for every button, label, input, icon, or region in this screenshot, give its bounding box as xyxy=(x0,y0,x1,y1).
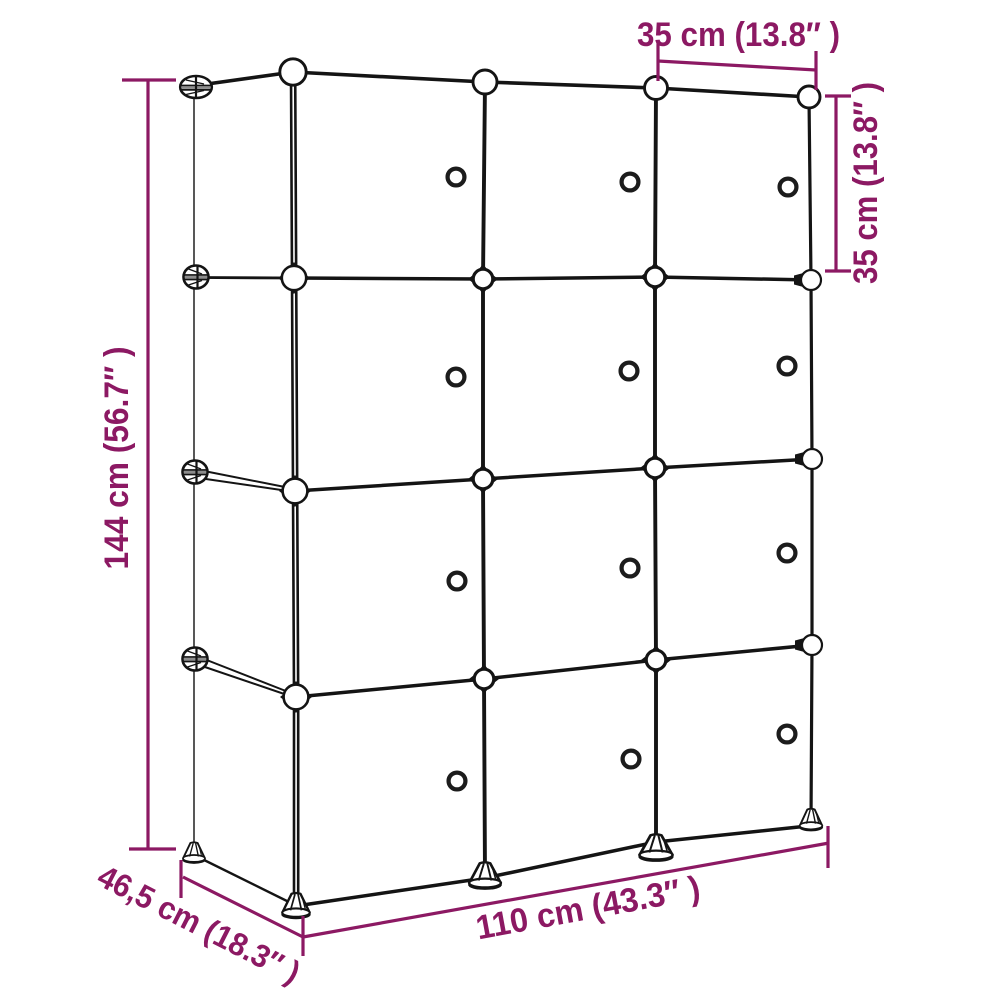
svg-text:35 cm (13.8″ ): 35 cm (13.8″ ) xyxy=(847,82,885,284)
svg-text:35 cm (13.8″ ): 35 cm (13.8″ ) xyxy=(637,16,840,54)
svg-text:144 cm (56.7″ ): 144 cm (56.7″ ) xyxy=(98,347,136,570)
